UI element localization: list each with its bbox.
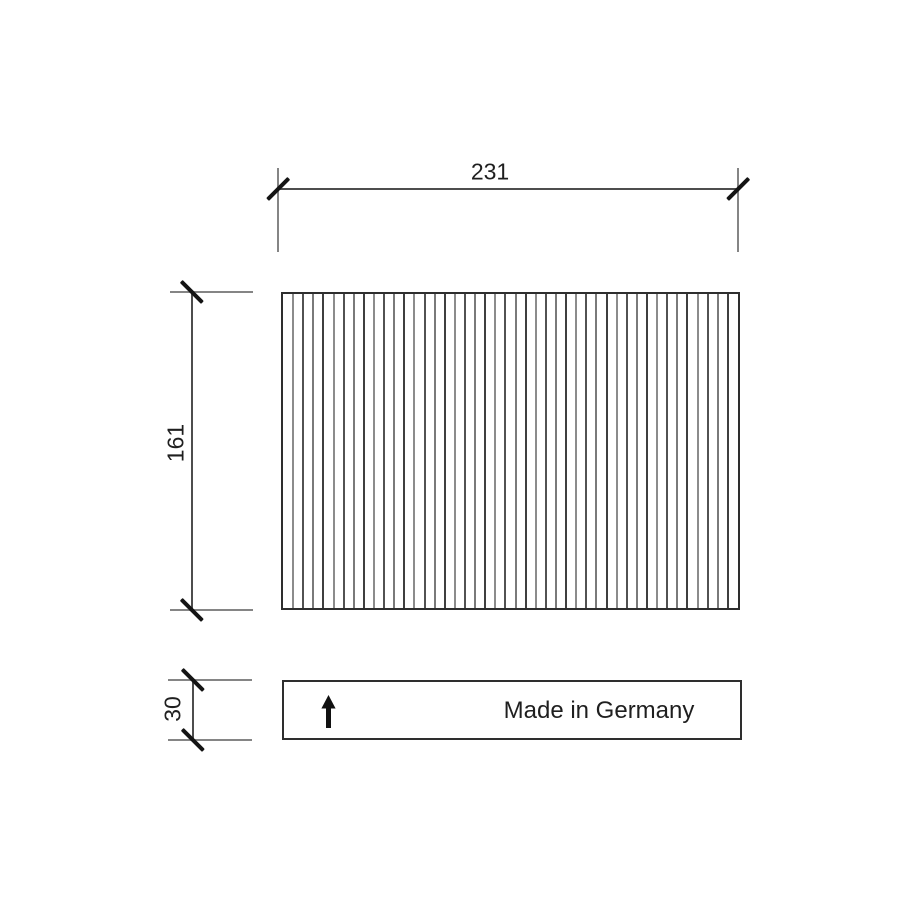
pleat-line [484, 294, 486, 608]
extension-line [170, 291, 253, 293]
pleat-line [585, 294, 587, 608]
pleat-line [302, 294, 304, 608]
pleat-line [727, 294, 729, 608]
pleat-line [464, 294, 466, 608]
pleat-line [525, 294, 527, 608]
pleat-line [565, 294, 567, 608]
pleat-line [343, 294, 345, 608]
pleat-line [646, 294, 648, 608]
width-dimension-label: 231 [471, 161, 509, 184]
pleat-line [636, 294, 638, 608]
depth-dimension-label: 30 [162, 696, 185, 722]
airflow-arrow-icon [321, 695, 336, 728]
pleat-line [403, 294, 405, 608]
pleat-line [413, 294, 415, 608]
dimension-line [278, 188, 738, 190]
pleat-line [312, 294, 314, 608]
pleat-line [515, 294, 517, 608]
pleat-line [717, 294, 719, 608]
pleat-line [292, 294, 294, 608]
pleat-line [545, 294, 547, 608]
extension-line [168, 679, 252, 681]
extension-line [168, 739, 252, 741]
pleat-line [504, 294, 506, 608]
pleat-line [383, 294, 385, 608]
extension-line [170, 609, 253, 611]
filter-side-view-label-box: Made in Germany [282, 680, 742, 740]
extension-line [277, 168, 279, 252]
pleat-line [494, 294, 496, 608]
made-in-germany-label: Made in Germany [504, 697, 695, 725]
pleat-line [535, 294, 537, 608]
pleat-line [444, 294, 446, 608]
pleat-line [454, 294, 456, 608]
pleat-line [424, 294, 426, 608]
pleat-line [626, 294, 628, 608]
dimension-line [191, 292, 193, 610]
pleat-line [474, 294, 476, 608]
pleat-line [555, 294, 557, 608]
pleat-line [616, 294, 618, 608]
pleat-line [656, 294, 658, 608]
technical-drawing: 231 161 30 Made in Germany [0, 0, 915, 915]
pleat-line [353, 294, 355, 608]
pleat-line [373, 294, 375, 608]
extension-line [737, 168, 739, 252]
pleat-line [686, 294, 688, 608]
dimension-line [192, 680, 194, 740]
height-dimension-label: 161 [165, 424, 188, 462]
pleat-line [707, 294, 709, 608]
pleat-line [676, 294, 678, 608]
pleat-line [363, 294, 365, 608]
pleat-line [595, 294, 597, 608]
pleat-line [666, 294, 668, 608]
pleat-line [393, 294, 395, 608]
pleat-lines [283, 294, 738, 608]
pleat-line [606, 294, 608, 608]
filter-front-view [281, 292, 740, 610]
pleat-line [322, 294, 324, 608]
pleat-line [333, 294, 335, 608]
pleat-line [434, 294, 436, 608]
pleat-line [697, 294, 699, 608]
pleat-line [575, 294, 577, 608]
